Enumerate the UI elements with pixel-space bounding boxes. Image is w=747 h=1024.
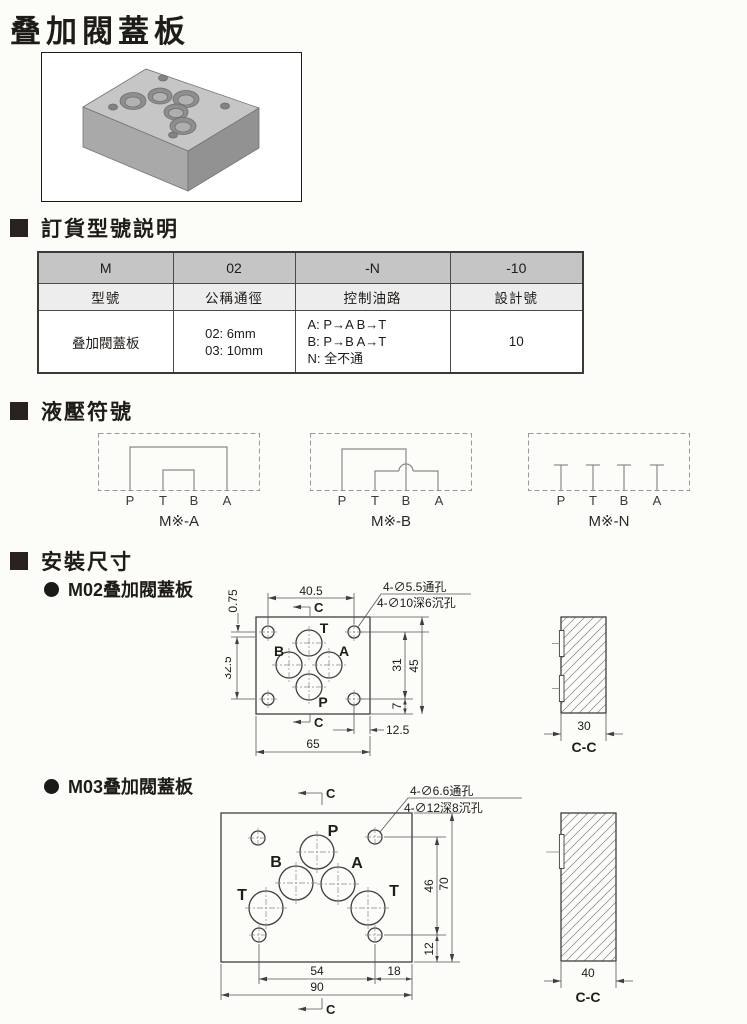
section-mounting-title: 安裝尺寸 (41, 546, 133, 576)
m02-label: M02叠加閥蓋板 (68, 576, 193, 602)
m03-dim-bottom: 90 (310, 980, 324, 994)
symbol-lines (342, 449, 438, 491)
circuits-cell: A: P→A B→T B: P→B A→T N: 全不通 (295, 311, 450, 374)
port-label: B (394, 493, 418, 508)
m03-leader-line1: 4-∅6.6通孔 (410, 784, 473, 798)
m03-centerlines (245, 827, 389, 945)
m03-drawing: P B A T T 46 70 12 54 18 90 C C 4-∅6.6通孔… (200, 780, 530, 1024)
m03-dim-bottom-left: 54 (310, 964, 324, 978)
m02-section-letter-top: C (314, 600, 324, 615)
symbol-mA: P T B A M※-A (98, 433, 260, 533)
port-label: T (151, 493, 175, 508)
m02-section-view: 30 C-C (530, 600, 650, 760)
m03-dim-right-small: 12 (422, 942, 436, 956)
header-cell: 設計號 (450, 284, 583, 311)
m03-outline (221, 813, 412, 962)
counterbore-notch (559, 676, 564, 702)
m02-cc-width: 30 (577, 719, 591, 733)
m03-section-letter-top: C (326, 786, 336, 801)
product-photo (41, 52, 302, 202)
m02-dim-offset: 0.75 (226, 589, 240, 613)
section-symbols: 液壓符號 (10, 396, 133, 426)
section-ordering: 訂貨型號説明 (10, 213, 179, 243)
code-cell: M (38, 252, 173, 284)
m02-heading: M02叠加閥蓋板 (44, 576, 193, 602)
port-label: B (182, 493, 206, 508)
order-code-table: M 02 -N -10 型號 公稱通徑 控制油路 設計號 叠加閥蓋板 02: 6… (37, 251, 584, 374)
symbol-mN: P T B A M※-N (528, 433, 690, 533)
m02-hatch (561, 617, 606, 713)
m02-dim-corner: 12.5 (386, 723, 410, 737)
product-photo-render (42, 53, 301, 201)
port-label: P (118, 493, 142, 508)
symbol-caption: M※-B (310, 512, 472, 530)
m03-section-letter-bottom: C (326, 1002, 336, 1017)
m03-label: M03叠加閥蓋板 (68, 773, 193, 799)
bullet-icon (44, 779, 59, 794)
section-square-icon (10, 552, 28, 570)
header-cell: 公稱通徑 (173, 284, 295, 311)
port-label: T (581, 493, 605, 508)
symbol-caption: M※-N (528, 512, 690, 530)
design-cell: 10 (450, 311, 583, 374)
m02-centerlines (259, 623, 363, 708)
m02-section-letter-bottom: C (314, 715, 324, 730)
m02-dim-right-small: 7 (390, 702, 404, 709)
counterbore-notch (559, 835, 564, 869)
symbol-mB-diagram (310, 433, 472, 491)
port-label: B (612, 493, 636, 508)
bullet-icon (44, 582, 59, 597)
m03-dim-right-inner: 46 (422, 879, 436, 893)
symbol-mA-diagram (98, 433, 260, 491)
code-cell: -N (295, 252, 450, 284)
m03-port-p: P (328, 823, 339, 840)
m03-heading: M03叠加閥蓋板 (44, 773, 193, 799)
section-symbols-title: 液壓符號 (41, 396, 133, 426)
page-title: 叠加閥蓋板 (10, 6, 190, 51)
m03-port-a: A (351, 855, 363, 872)
symbol-mB: P T B A M※-B (310, 433, 472, 533)
m02-port-a: A (339, 643, 349, 659)
port-label: A (215, 493, 239, 508)
port-label: P (549, 493, 573, 508)
port-label: T (363, 493, 387, 508)
m03-dim-right-outer: 70 (437, 877, 451, 891)
m03-port-t2: T (389, 883, 399, 900)
port-label: P (330, 493, 354, 508)
circuit-line: N: 全不通 (308, 350, 387, 367)
m02-port-t: T (320, 620, 329, 636)
m02-drawing: T B A P 40.5 0.75 32.5 31 45 7 12.5 65 C… (225, 575, 475, 765)
section-mounting: 安裝尺寸 (10, 546, 133, 576)
header-cell: 型號 (38, 284, 173, 311)
circuit-line: A: P→A B→T (308, 316, 387, 333)
m02-cc-caption: C-C (572, 739, 597, 755)
m03-hatch (561, 813, 616, 961)
symbol-lines (554, 465, 664, 491)
section-ordering-title: 訂貨型號説明 (41, 213, 179, 243)
m03-port-b: B (270, 854, 282, 871)
m02-dim-right-outer: 45 (407, 659, 421, 673)
m03-section-view: 40 C-C (530, 795, 660, 1020)
port-label: A (427, 493, 451, 508)
code-cell: 02 (173, 252, 295, 284)
symbol-caption: M※-A (98, 512, 260, 530)
table-code-row: M 02 -N -10 (38, 252, 583, 284)
catalog-page: { "title": "叠加閥蓋板", "sections": {"orderi… (0, 0, 747, 1024)
m02-dim-bottom: 65 (306, 737, 320, 751)
m02-port-p: P (318, 694, 327, 710)
m02-port-b: B (274, 643, 284, 659)
symbol-mN-diagram (528, 433, 690, 491)
table-header-row: 型號 公稱通徑 控制油路 設計號 (38, 284, 583, 311)
m02-leader-line1: 4-∅5.5通孔 (383, 580, 446, 594)
m02-leader-line2: 4-∅10深6沉孔 (377, 596, 456, 610)
notch-ticks (552, 644, 560, 689)
size-line: 03: 10mm (205, 342, 263, 359)
size-line: 02: 6mm (205, 325, 263, 342)
m03-dim-bottom-right: 18 (387, 964, 401, 978)
m02-dim-left: 32.5 (225, 656, 234, 680)
m02-dim-right-inner: 31 (390, 658, 404, 672)
m03-cc-caption: C-C (576, 989, 601, 1005)
m02-dim-top: 40.5 (299, 584, 323, 598)
sizes-cell: 02: 6mm 03: 10mm (173, 311, 295, 374)
table-data-row: 叠加閥蓋板 02: 6mm 03: 10mm A: P→A B→T B: P→B… (38, 311, 583, 374)
port-label: A (645, 493, 669, 508)
symbol-lines (130, 447, 227, 491)
circuit-line: B: P→B A→T (308, 333, 387, 350)
model-cell: 叠加閥蓋板 (38, 311, 173, 374)
counterbore-notch (559, 631, 564, 657)
m03-leader-line2: 4-∅12深8沉孔 (404, 801, 483, 815)
m03-port-t1: T (237, 887, 247, 904)
section-square-icon (10, 219, 28, 237)
header-cell: 控制油路 (295, 284, 450, 311)
code-cell: -10 (450, 252, 583, 284)
section-square-icon (10, 402, 28, 420)
m03-cc-width: 40 (581, 966, 595, 980)
m02-outline (256, 617, 370, 714)
